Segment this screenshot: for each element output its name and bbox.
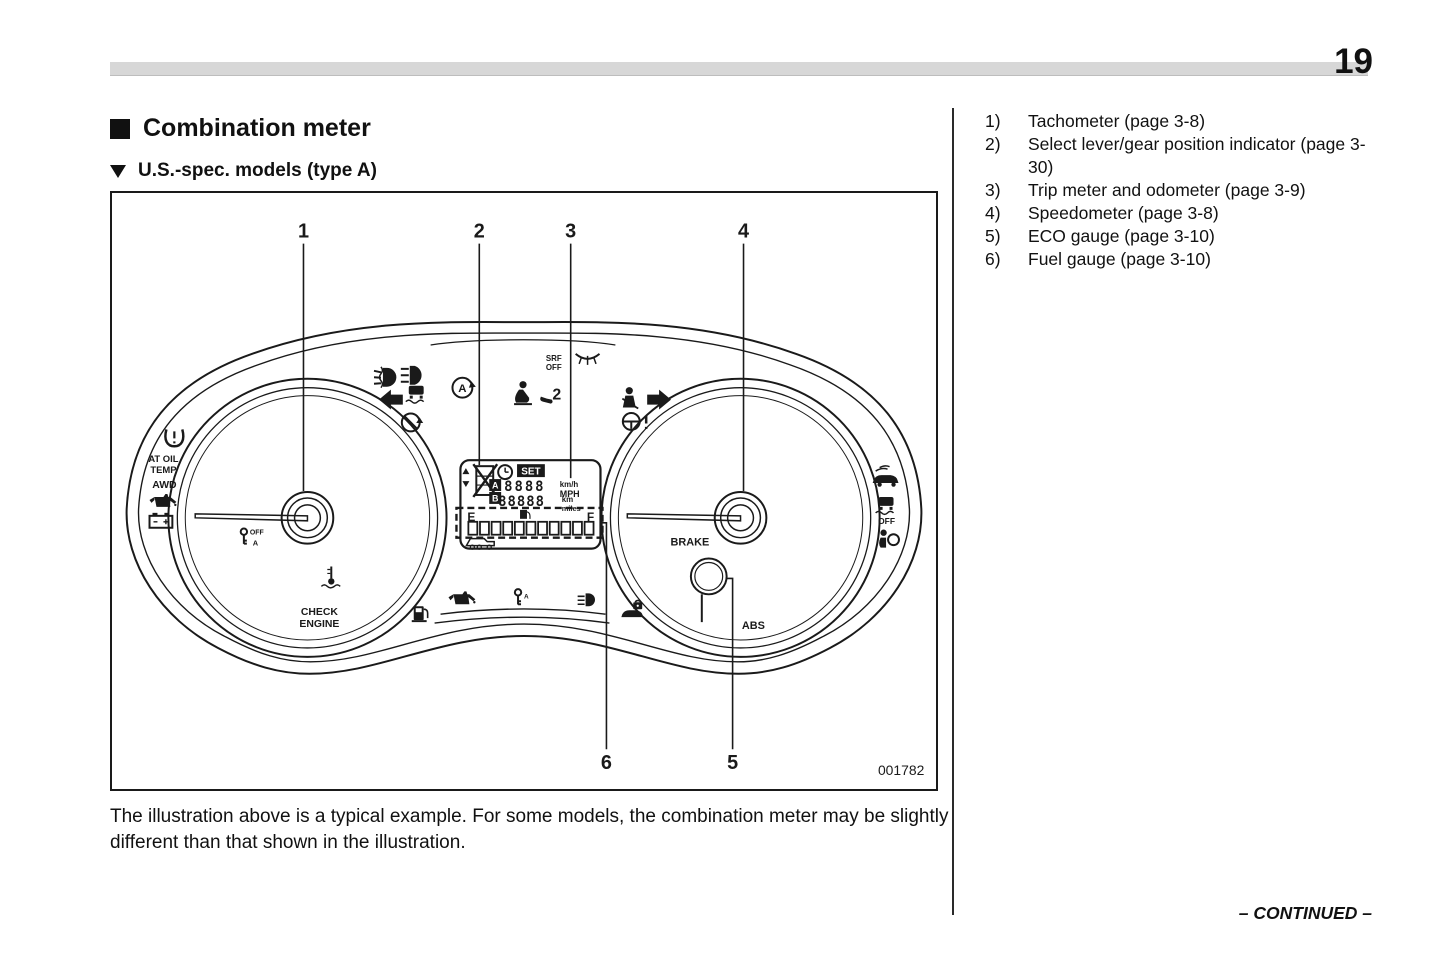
callout-2: 2 — [474, 221, 485, 243]
header-rule — [110, 62, 1368, 76]
km-unit-label: km — [562, 495, 573, 504]
srf-off-label-2: OFF — [546, 363, 562, 372]
oil-level-icon — [449, 591, 476, 604]
check-engine-label-1: CHECK — [301, 607, 339, 618]
washer-fluid-icon — [576, 354, 600, 365]
callout-3: 3 — [565, 221, 576, 243]
awd-label: AWD — [152, 480, 177, 491]
vdc-indicator-icon — [406, 386, 424, 403]
srf-off-label-1: SRF — [546, 354, 562, 363]
callout-1: 1 — [298, 221, 309, 243]
gear-2-label: 2 — [552, 387, 561, 404]
speedometer-needle — [627, 514, 740, 521]
abs-label: ABS — [742, 620, 765, 632]
down-arrow-icon — [462, 481, 469, 487]
left-turn-signal-icon — [379, 390, 403, 410]
column-divider — [952, 108, 954, 915]
legend-text: Speedometer (page 3-8) — [1028, 202, 1377, 225]
manual-page: 19 Combination meter U.S.-spec. models (… — [0, 0, 1445, 963]
legend-num: 4) — [985, 202, 1028, 225]
heading-triangle-icon — [110, 165, 126, 178]
fuel-pump-mini-icon — [520, 510, 530, 519]
at-oil-temp-label-1: AT OIL — [148, 453, 178, 464]
legend-text: ECO gauge (page 3-10) — [1028, 225, 1377, 248]
legend-text: Tachometer (page 3-8) — [1028, 110, 1377, 133]
legend-num: 3) — [985, 179, 1028, 202]
legend-item-eco-gauge: 5) ECO gauge (page 3-10) — [985, 225, 1377, 248]
legend-text: Trip meter and odometer (page 3-9) — [1028, 179, 1377, 202]
section-heading: Combination meter — [110, 114, 371, 143]
airbag-icon — [879, 530, 899, 548]
kmh-unit-label: km/h — [560, 480, 579, 489]
legend-num: 2) — [985, 133, 1028, 179]
car-motion-icon — [873, 466, 899, 487]
brake-label: BRAKE — [670, 537, 709, 549]
legend-num: 1) — [985, 110, 1028, 133]
up-arrow-icon — [462, 468, 469, 474]
figure-caption: The illustration above is a typical exam… — [110, 804, 950, 856]
check-engine-label-2: ENGINE — [299, 619, 339, 630]
passenger-seat-icon — [514, 381, 532, 404]
legend-list: 1) Tachometer (page 3-8) 2) Select lever… — [985, 110, 1377, 271]
trip-a-label: A — [492, 481, 499, 491]
cruise-auto-icon: A — [452, 378, 475, 398]
vdc-off-label: OFF — [878, 516, 895, 526]
page-number: 19 — [1334, 42, 1373, 82]
figure-code: 001782 — [878, 762, 925, 778]
tachometer-needle — [195, 514, 307, 521]
legend-item-select-lever: 2) Select lever/gear position indicator … — [985, 133, 1377, 179]
at-oil-temp-label-2: TEMP — [150, 464, 176, 475]
fog-light-icon — [374, 367, 396, 388]
lcd-display: SET A B 8888 km/h MPH 88888 km miles E F — [456, 460, 602, 549]
continued-marker: – CONTINUED – — [1239, 903, 1372, 924]
callout-4: 4 — [738, 221, 749, 243]
light-warning-icon — [578, 593, 595, 606]
eco-gauge — [691, 559, 727, 623]
clock-icon — [498, 465, 512, 479]
coolant-temp-icon — [321, 566, 340, 587]
set-label: SET — [521, 467, 540, 478]
legend-num: 5) — [985, 225, 1028, 248]
oil-pressure-icon — [150, 494, 177, 507]
high-beam-icon — [401, 366, 422, 385]
callout-5: 5 — [727, 752, 738, 774]
fuel-pump-icon — [412, 606, 428, 621]
gear-2-foot-icon: 2 — [540, 387, 561, 404]
heading-square-icon — [110, 119, 130, 139]
key-icon: A — [515, 589, 529, 604]
odometer-digits: 8888 — [504, 479, 545, 495]
speedometer-gauge — [601, 379, 879, 657]
right-turn-signal-icon — [647, 390, 671, 410]
cruise-auto-label: A — [458, 383, 466, 395]
seatbelt-icon — [622, 387, 638, 408]
key-a-label: A — [253, 539, 259, 548]
tpms-icon — [165, 429, 183, 446]
callout-6: 6 — [601, 752, 612, 774]
section-heading-text: Combination meter — [143, 114, 371, 143]
subsection-heading: U.S.-spec. models (type A) — [110, 160, 377, 182]
legend-item-fuel-gauge: 6) Fuel gauge (page 3-10) — [985, 248, 1377, 271]
key-off-label: OFF — [250, 530, 264, 537]
legend-text: Select lever/gear position indicator (pa… — [1028, 133, 1377, 179]
legend-item-trip-meter: 3) Trip meter and odometer (page 3-9) — [985, 179, 1377, 202]
key-icon-a-label: A — [524, 593, 529, 600]
legend-item-tachometer: 1) Tachometer (page 3-8) — [985, 110, 1377, 133]
brake-hold-icon — [402, 414, 423, 432]
legend-num: 6) — [985, 248, 1028, 271]
subsection-heading-text: U.S.-spec. models (type A) — [138, 160, 377, 182]
legend-item-speedometer: 4) Speedometer (page 3-8) — [985, 202, 1377, 225]
security-icon — [621, 600, 643, 617]
key-off-indicator: OFF A — [241, 529, 264, 548]
legend-text: Fuel gauge (page 3-10) — [1028, 248, 1377, 271]
combination-meter-figure: CHECK ENGINE BRAKE ABS OFF A AT — [110, 191, 938, 791]
fuel-segments — [468, 522, 593, 535]
